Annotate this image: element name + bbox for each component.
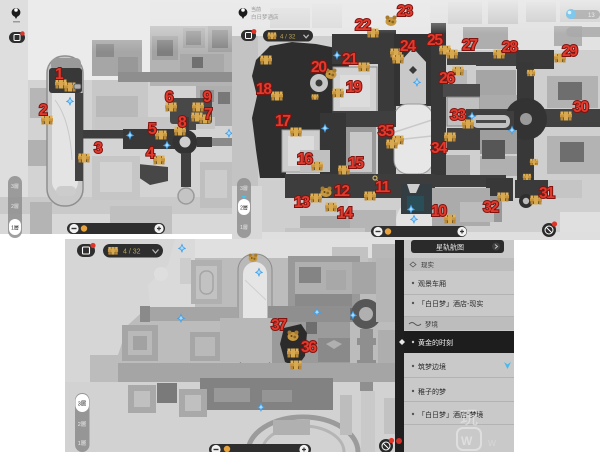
svg-text:14: 14 bbox=[337, 205, 353, 222]
svg-text:34: 34 bbox=[431, 140, 447, 157]
svg-text:20: 20 bbox=[311, 59, 326, 76]
svg-text:33: 33 bbox=[450, 107, 466, 124]
svg-text:玩: 玩 bbox=[460, 408, 478, 428]
svg-text:18: 18 bbox=[256, 81, 272, 98]
svg-text:17: 17 bbox=[275, 113, 290, 130]
svg-text:梦境: 梦境 bbox=[425, 320, 439, 329]
svg-text:稚子的梦: 稚子的梦 bbox=[418, 387, 446, 396]
svg-text:10: 10 bbox=[431, 203, 446, 220]
svg-text:23: 23 bbox=[397, 3, 413, 20]
svg-text:22: 22 bbox=[355, 17, 370, 34]
svg-text:21: 21 bbox=[342, 51, 358, 68]
svg-text:2層: 2層 bbox=[78, 421, 87, 428]
svg-text:黄金的时刻: 黄金的时刻 bbox=[418, 338, 453, 347]
svg-text:29: 29 bbox=[562, 43, 578, 60]
svg-text:36: 36 bbox=[301, 339, 317, 356]
svg-text:3層: 3層 bbox=[11, 184, 19, 190]
svg-text:32: 32 bbox=[483, 199, 498, 216]
svg-text:1層: 1層 bbox=[11, 226, 19, 232]
svg-text:16: 16 bbox=[297, 151, 313, 168]
svg-text:2層: 2層 bbox=[11, 204, 19, 210]
svg-text:「白日梦」酒店-现实: 「白日梦」酒店-现实 bbox=[418, 299, 483, 308]
svg-text:11: 11 bbox=[375, 179, 391, 196]
svg-text:4 / 32: 4 / 32 bbox=[280, 34, 296, 41]
svg-text:35: 35 bbox=[378, 123, 394, 140]
svg-text:1層: 1層 bbox=[240, 225, 248, 231]
svg-text:3層: 3層 bbox=[240, 186, 248, 192]
svg-text:24: 24 bbox=[400, 38, 416, 55]
svg-text:25: 25 bbox=[427, 32, 443, 49]
svg-text:观景车厢: 观景车厢 bbox=[418, 279, 446, 288]
svg-text:31: 31 bbox=[539, 185, 555, 202]
svg-text:13: 13 bbox=[294, 194, 310, 211]
svg-text:星轨航图: 星轨航图 bbox=[436, 243, 464, 252]
svg-text:13: 13 bbox=[588, 13, 595, 19]
svg-text:白日梦酒店: 白日梦酒店 bbox=[251, 13, 279, 21]
svg-text:筑梦边境: 筑梦边境 bbox=[418, 362, 446, 371]
svg-text:30: 30 bbox=[573, 99, 588, 116]
svg-text:19: 19 bbox=[346, 79, 362, 96]
svg-text:现实: 现实 bbox=[421, 260, 435, 269]
svg-text:3層: 3層 bbox=[78, 401, 87, 408]
svg-text:26: 26 bbox=[439, 70, 455, 87]
svg-text:当前: 当前 bbox=[251, 6, 261, 13]
svg-text:2: 2 bbox=[39, 102, 47, 119]
svg-text:1層: 1層 bbox=[78, 440, 87, 447]
svg-text:7: 7 bbox=[204, 106, 212, 123]
svg-text:27: 27 bbox=[462, 37, 477, 54]
svg-text:12: 12 bbox=[334, 183, 349, 200]
svg-text:37: 37 bbox=[271, 317, 286, 334]
svg-text:2層: 2層 bbox=[240, 206, 248, 212]
svg-text:w: w bbox=[487, 437, 496, 449]
svg-text:28: 28 bbox=[502, 39, 518, 56]
svg-text:4 / 32: 4 / 32 bbox=[123, 249, 141, 256]
svg-text:W: W bbox=[461, 434, 473, 448]
svg-text:15: 15 bbox=[348, 155, 364, 172]
